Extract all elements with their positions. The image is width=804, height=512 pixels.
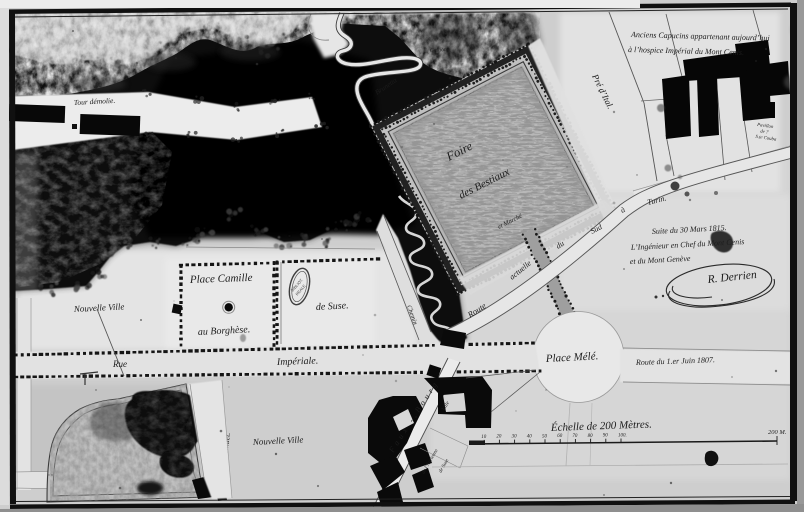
svg-text:40: 40 <box>527 434 533 439</box>
svg-text:Gallion: Gallion <box>430 47 447 54</box>
svg-text:Place Camille: Place Camille <box>189 272 253 286</box>
svg-text:80: 80 <box>588 434 594 439</box>
svg-text:50: 50 <box>542 434 548 439</box>
svg-text:de Suse.: de Suse. <box>316 300 349 313</box>
svg-text:10: 10 <box>481 435 487 440</box>
svg-text:70: 70 <box>572 434 578 439</box>
svg-text:100.: 100. <box>618 434 627 439</box>
svg-text:Impériale.: Impériale. <box>276 356 319 368</box>
svg-text:60: 60 <box>557 434 563 439</box>
svg-text:20: 20 <box>496 435 502 440</box>
svg-text:30: 30 <box>512 435 517 440</box>
svg-text:90: 90 <box>603 434 609 439</box>
svg-text:200 M.: 200 M. <box>768 429 787 436</box>
